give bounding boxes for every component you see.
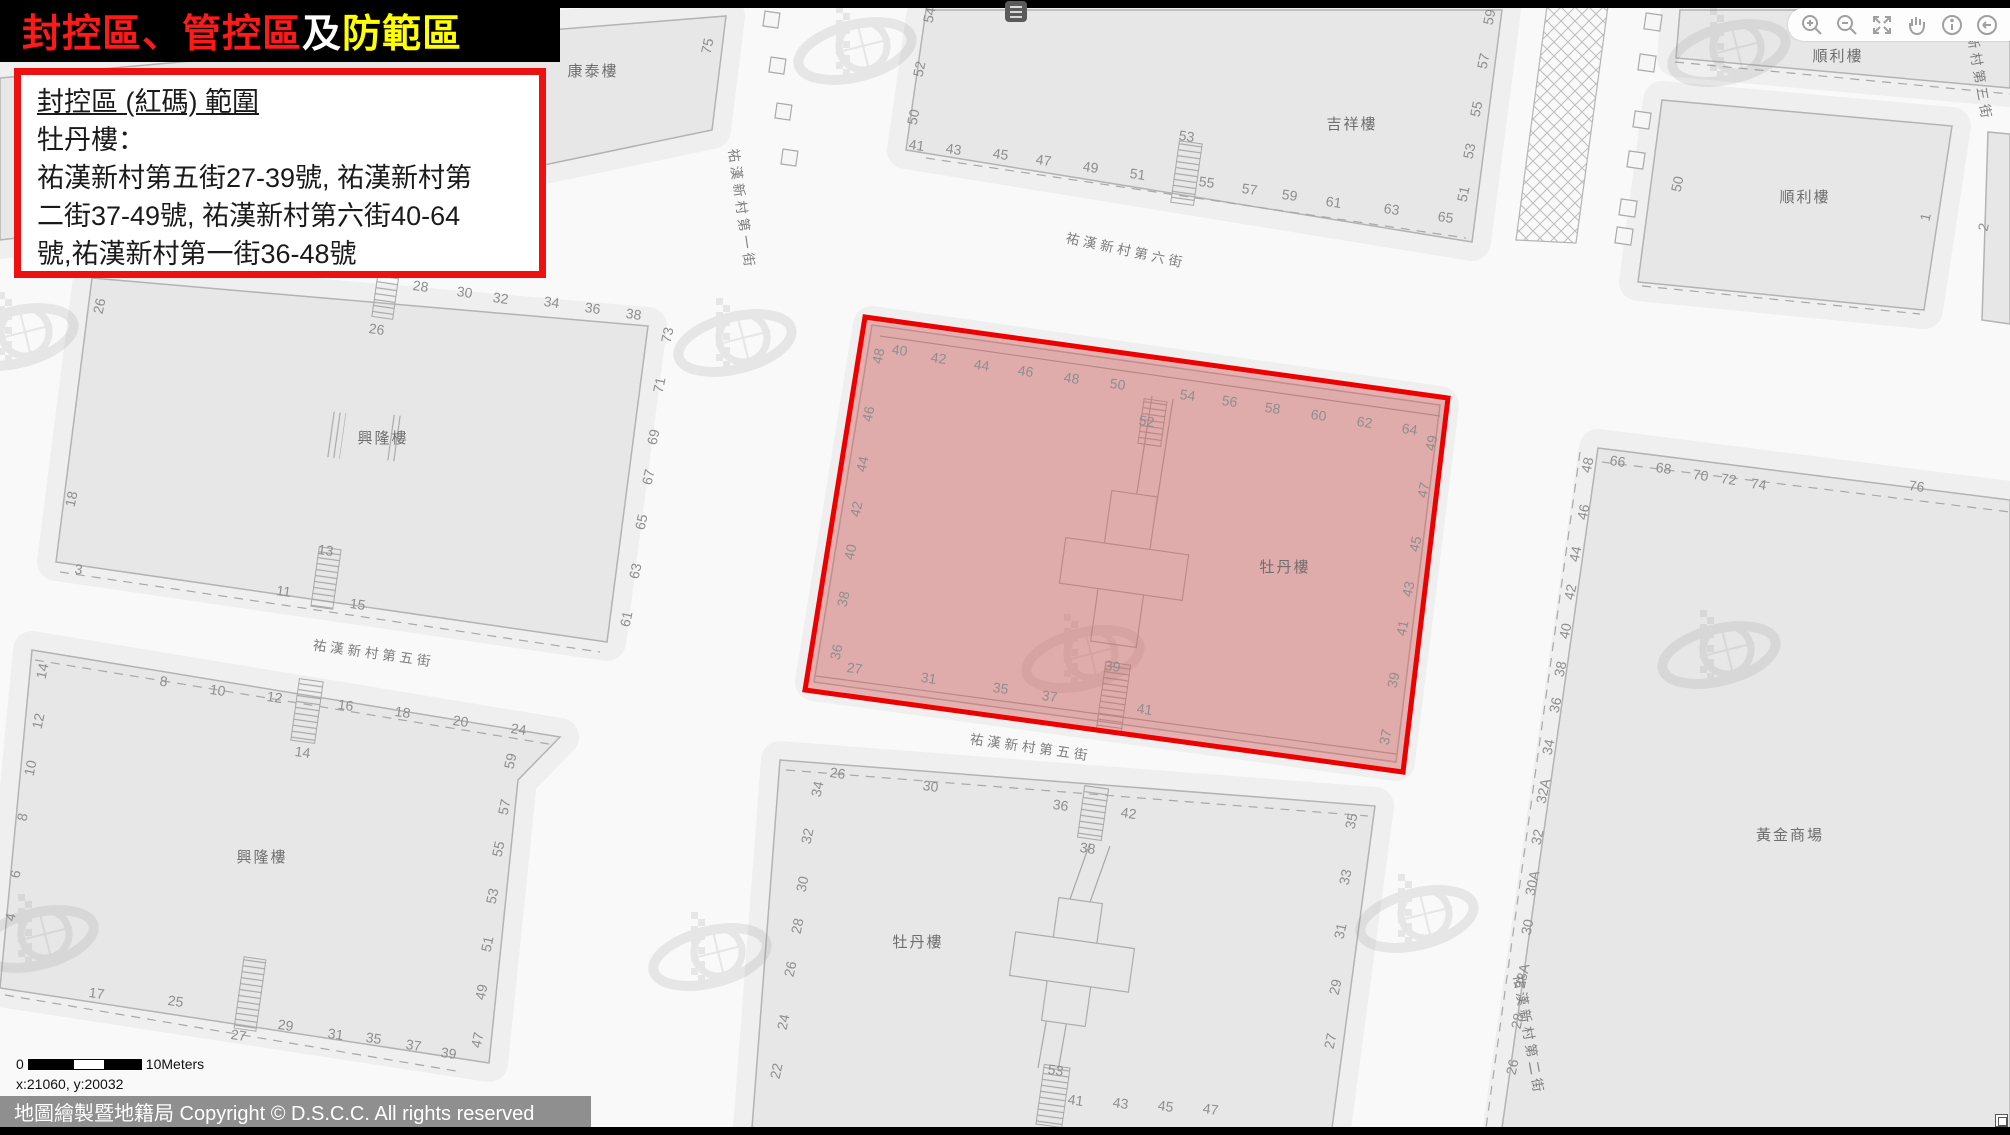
building-label: 牡丹樓 bbox=[1259, 559, 1310, 576]
house-number: 42 bbox=[1120, 804, 1138, 822]
house-number: 38 bbox=[625, 305, 643, 323]
house-number: 58 bbox=[1264, 399, 1282, 417]
house-number: 55 bbox=[1198, 173, 1216, 191]
house-number: 43 bbox=[945, 140, 963, 158]
info-box-line: 二街37-49號, 祐漢新村第六街40-64 bbox=[37, 197, 525, 235]
house-number: 13 bbox=[317, 541, 335, 559]
house-number: 28 bbox=[412, 277, 430, 295]
house-number: 40 bbox=[891, 341, 909, 359]
house-number: 42 bbox=[930, 349, 948, 367]
house-number: 53 bbox=[1047, 1061, 1065, 1079]
house-number: 32 bbox=[492, 289, 510, 307]
house-number: 41 bbox=[1067, 1091, 1085, 1109]
info-box-line: 祐漢新村第五街27-39號, 祐漢新村第 bbox=[37, 159, 525, 197]
house-number: 12 bbox=[266, 688, 284, 706]
page-title: 封控區、管控區及防範區 bbox=[0, 0, 560, 62]
building-label: 吉祥樓 bbox=[1326, 116, 1377, 133]
house-number: 30 bbox=[922, 777, 940, 795]
house-number: 41 bbox=[908, 136, 926, 154]
house-number: 20 bbox=[452, 712, 470, 730]
house-number: 50 bbox=[1109, 375, 1127, 393]
house-number: 57 bbox=[1241, 180, 1259, 198]
house-number: 25 bbox=[167, 992, 185, 1010]
info-box-line: 號,祐漢新村第一街36-48號 bbox=[37, 235, 525, 273]
house-number: 36 bbox=[1052, 796, 1070, 814]
house-number: 14 bbox=[294, 743, 312, 761]
house-number: 44 bbox=[973, 356, 991, 374]
menu-icon[interactable] bbox=[1005, 1, 1027, 22]
info-box-subject: 牡丹樓： bbox=[37, 121, 525, 159]
house-number: 31 bbox=[327, 1025, 345, 1043]
house-number: 35 bbox=[992, 679, 1010, 697]
copyright-bar: 地圖繪製暨地籍局 Copyright © D.S.C.C. All rights… bbox=[0, 1096, 591, 1127]
info-icon[interactable] bbox=[1940, 13, 1964, 37]
house-number: 51 bbox=[1129, 165, 1147, 183]
map-application-window: 康泰樓吉祥樓順利樓順利樓興隆樓興隆樓牡丹樓牡丹樓黃金商場祐漢新村第五街祐漢新村第… bbox=[0, 0, 2010, 1135]
building-label: 興隆樓 bbox=[236, 849, 287, 866]
house-number: 68 bbox=[1655, 459, 1673, 477]
pan-hand-icon[interactable] bbox=[1905, 13, 1929, 37]
house-number: 17 bbox=[88, 984, 106, 1002]
house-number: 11 bbox=[275, 582, 292, 600]
window-icon[interactable] bbox=[1995, 1114, 2008, 1127]
house-number: 66 bbox=[1609, 452, 1627, 470]
map-toolbar bbox=[1788, 8, 2010, 41]
house-number: 53 bbox=[1178, 127, 1196, 145]
fullscreen-icon[interactable] bbox=[1870, 13, 1894, 37]
house-number: 26 bbox=[829, 764, 847, 782]
scale-zero-label: 0 bbox=[16, 1056, 24, 1072]
building-label: 黃金商場 bbox=[1756, 827, 1824, 844]
house-number: 34 bbox=[543, 293, 561, 311]
scale-bar: 0 10Meters bbox=[16, 1056, 204, 1072]
cursor-coordinates: x:21060, y:20032 bbox=[16, 1076, 123, 1092]
building-label: 牡丹樓 bbox=[892, 934, 943, 951]
house-number: 47 bbox=[1035, 151, 1053, 169]
house-number: 26 bbox=[368, 320, 386, 338]
lockdown-info-box: 封控區 (紅碼) 範圍 牡丹樓： 祐漢新村第五街27-39號, 祐漢新村第 二街… bbox=[14, 68, 546, 278]
house-number: 52 bbox=[1138, 412, 1156, 430]
house-number: 56 bbox=[1221, 392, 1239, 410]
house-number: 59 bbox=[1281, 186, 1299, 204]
house-number: 46 bbox=[1017, 362, 1035, 380]
house-number: 76 bbox=[1908, 477, 1926, 495]
house-number: 39 bbox=[1104, 657, 1122, 675]
house-number: 35 bbox=[365, 1029, 383, 1047]
bottom-black-strip bbox=[0, 1127, 2010, 1135]
house-number: 29 bbox=[277, 1016, 295, 1034]
building-label: 順利樓 bbox=[1779, 189, 1830, 206]
house-number: 74 bbox=[1750, 475, 1768, 493]
house-number: 30 bbox=[456, 283, 474, 301]
building-label: 興隆樓 bbox=[357, 430, 408, 447]
house-number: 27 bbox=[230, 1026, 248, 1044]
house-number: 37 bbox=[405, 1036, 423, 1054]
house-number: 16 bbox=[337, 696, 355, 714]
house-number: 27 bbox=[846, 659, 864, 677]
house-number: 70 bbox=[1692, 466, 1710, 484]
title-yellow-text: 防範區 bbox=[342, 3, 462, 59]
house-number: 39 bbox=[440, 1044, 458, 1062]
back-icon[interactable] bbox=[1975, 13, 1999, 37]
house-number: 65 bbox=[1437, 208, 1455, 226]
house-number: 38 bbox=[1079, 839, 1097, 857]
house-number: 48 bbox=[1063, 369, 1081, 387]
title-white-text: 及 bbox=[302, 3, 342, 59]
info-box-heading: 封控區 (紅碼) 範圍 bbox=[37, 83, 525, 121]
title-red-text: 封控區、管控區 bbox=[22, 3, 302, 59]
house-number: 45 bbox=[1157, 1097, 1175, 1115]
house-number: 47 bbox=[1202, 1100, 1220, 1118]
house-number: 31 bbox=[920, 669, 938, 687]
house-number: 72 bbox=[1720, 470, 1738, 488]
house-number: 10 bbox=[209, 681, 227, 699]
house-number: 64 bbox=[1401, 420, 1419, 438]
house-number: 61 bbox=[1325, 193, 1343, 211]
house-number: 63 bbox=[1383, 200, 1401, 218]
scale-distance-label: 10Meters bbox=[146, 1056, 204, 1072]
house-number: 37 bbox=[1041, 687, 1059, 705]
house-number: 18 bbox=[394, 703, 412, 721]
house-number: 60 bbox=[1310, 406, 1328, 424]
zoom-in-icon[interactable] bbox=[1800, 13, 1824, 37]
house-number: 15 bbox=[349, 595, 367, 613]
house-number: 49 bbox=[1082, 158, 1100, 176]
house-number: 41 bbox=[1136, 700, 1154, 718]
house-number: 43 bbox=[1112, 1094, 1130, 1112]
house-number: 54 bbox=[1179, 386, 1197, 404]
house-number: 62 bbox=[1356, 413, 1374, 431]
lockdown-zone-polygon[interactable] bbox=[805, 317, 1448, 772]
building-label: 康泰樓 bbox=[567, 63, 618, 80]
house-number: 36 bbox=[584, 299, 602, 317]
house-number: 45 bbox=[992, 145, 1010, 163]
house-number: 24 bbox=[510, 720, 528, 738]
zoom-out-icon[interactable] bbox=[1835, 13, 1859, 37]
building-label: 順利樓 bbox=[1812, 48, 1863, 65]
scale-bar-graphic bbox=[28, 1059, 142, 1070]
